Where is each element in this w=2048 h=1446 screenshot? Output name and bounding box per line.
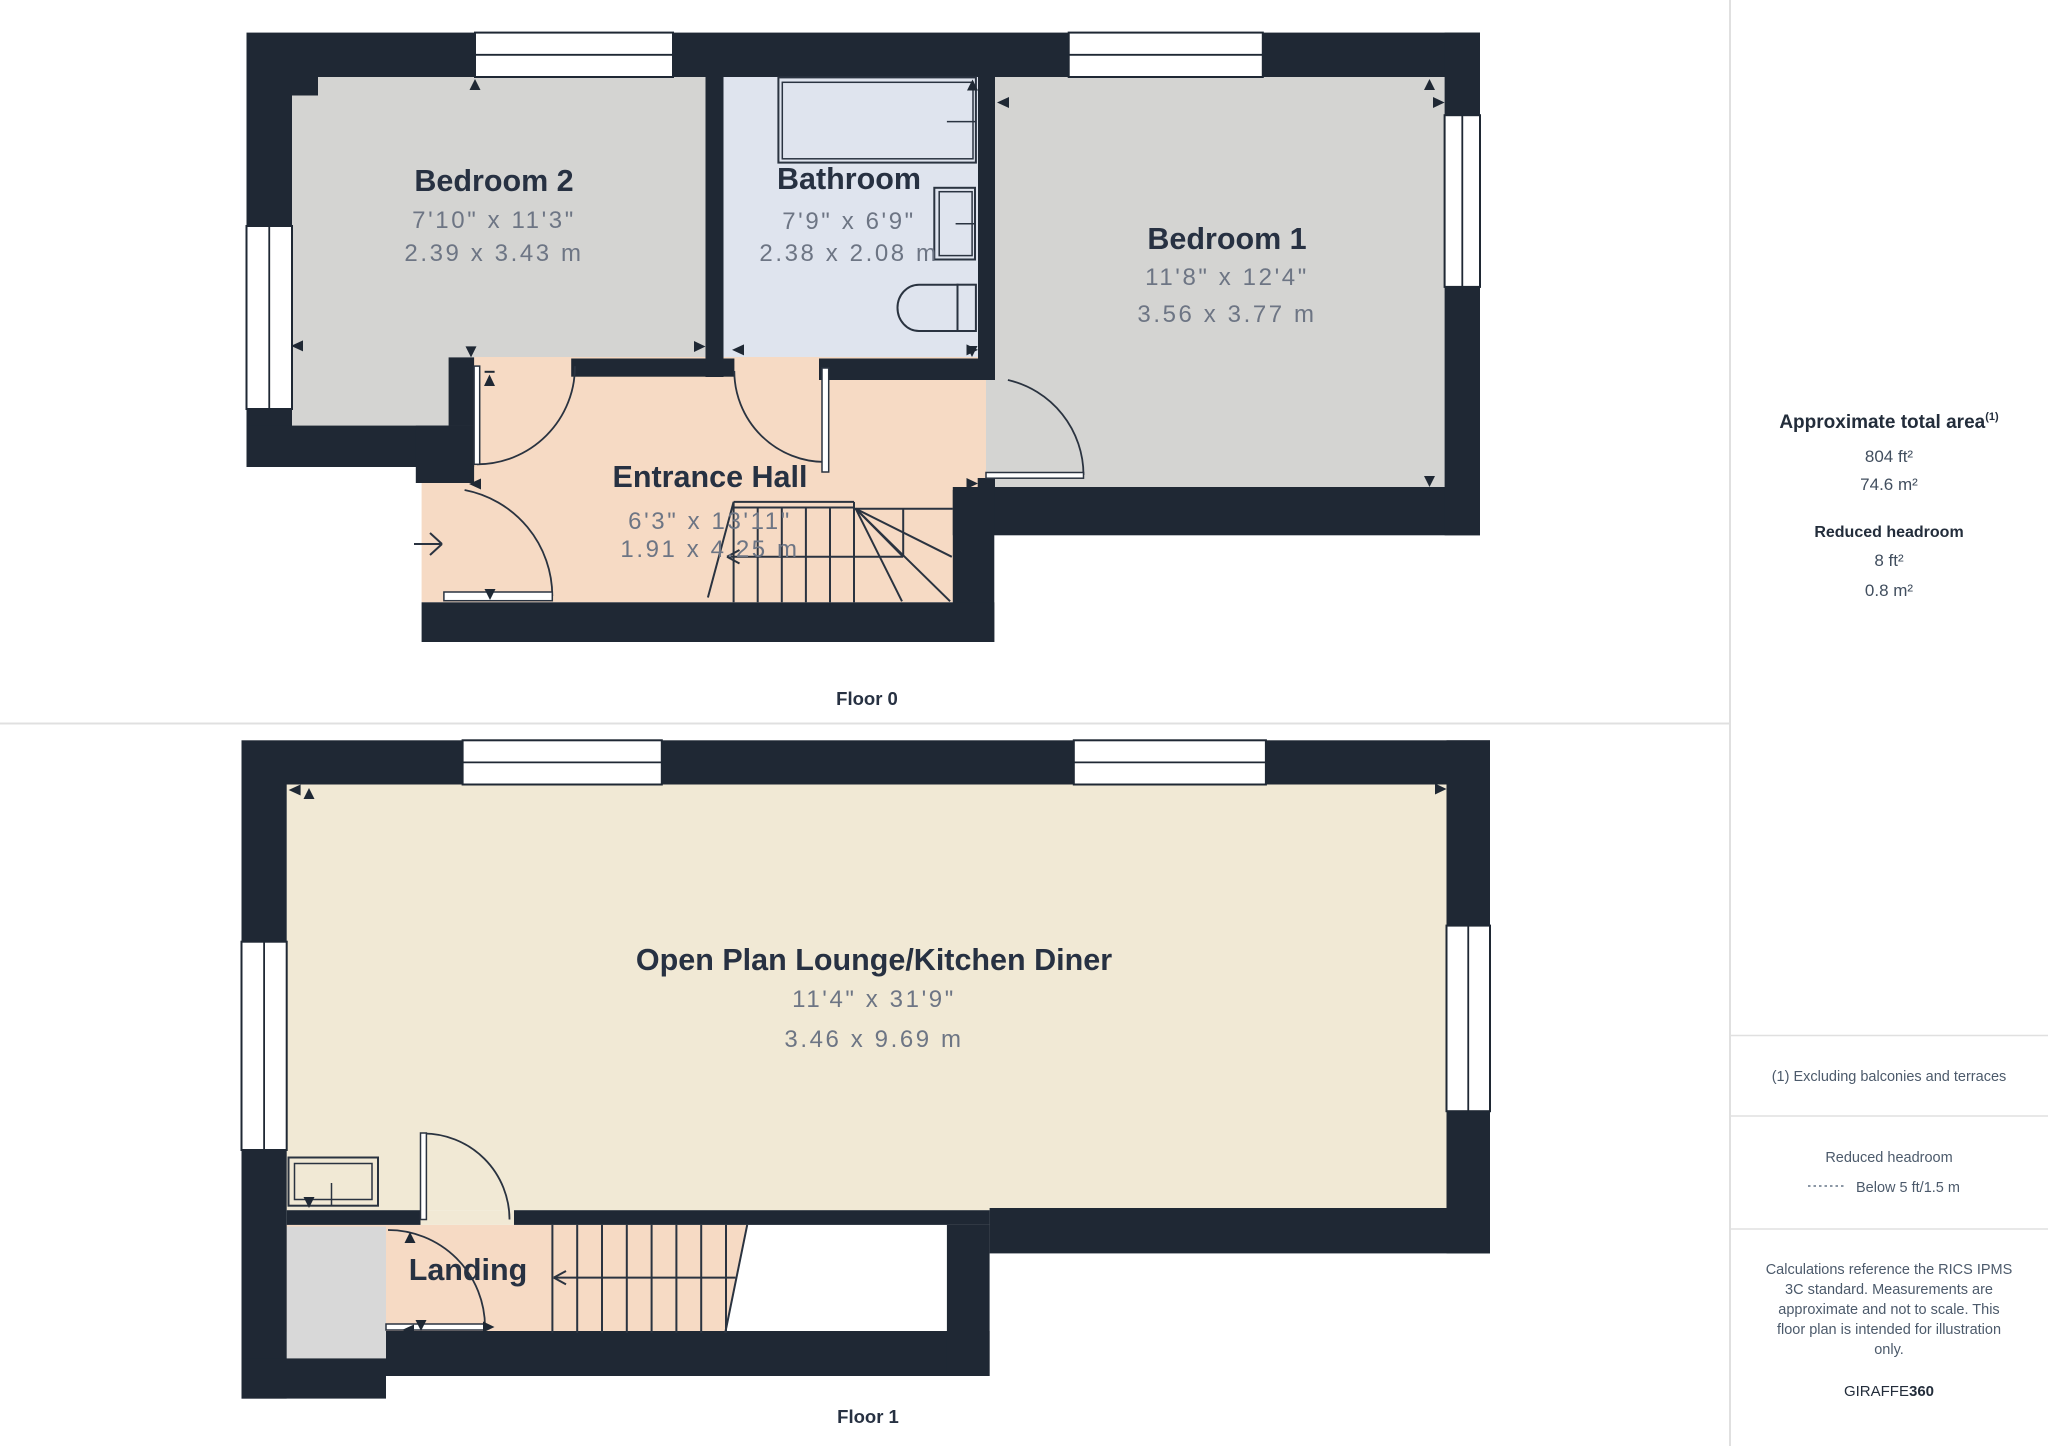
svg-text:7'10" x 11'3": 7'10" x 11'3" (412, 207, 576, 234)
svg-text:(1) Excluding balconies and te: (1) Excluding balconies and terraces (1772, 1069, 2007, 1085)
svg-text:8 ft²: 8 ft² (1874, 551, 1904, 570)
svg-text:Entrance Hall: Entrance Hall (613, 460, 808, 494)
svg-text:Bathroom: Bathroom (777, 162, 921, 196)
svg-text:3.56 x 3.77 m: 3.56 x 3.77 m (1137, 301, 1316, 328)
svg-text:11'8" x 12'4": 11'8" x 12'4" (1145, 264, 1309, 291)
svg-text:Approximate total area(1): Approximate total area(1) (1779, 411, 1999, 433)
svg-text:approximate and not to scale.: approximate and not to scale. This (1778, 1302, 1999, 1318)
svg-text:Below 5 ft/1.5 m: Below 5 ft/1.5 m (1856, 1180, 1960, 1196)
svg-text:11'4" x 31'9": 11'4" x 31'9" (792, 986, 956, 1013)
svg-text:Calculations reference the RIC: Calculations reference the RICS IPMS (1766, 1262, 2013, 1278)
svg-text:3.46 x 9.69 m: 3.46 x 9.69 m (784, 1026, 963, 1053)
svg-text:0.8 m²: 0.8 m² (1865, 581, 1914, 600)
svg-text:floor plan is intended for ill: floor plan is intended for illustration (1777, 1322, 2001, 1338)
svg-text:Landing: Landing (409, 1253, 528, 1287)
svg-text:only.: only. (1874, 1342, 1904, 1358)
svg-text:GIRAFFE360: GIRAFFE360 (1844, 1383, 1934, 1400)
svg-text:1.91 x 4.25 m: 1.91 x 4.25 m (620, 536, 799, 563)
svg-text:Floor 1: Floor 1 (837, 1406, 899, 1427)
svg-text:74.6 m²: 74.6 m² (1860, 475, 1918, 494)
svg-text:804 ft²: 804 ft² (1865, 447, 1914, 466)
svg-text:2.38 x 2.08 m: 2.38 x 2.08 m (759, 240, 938, 267)
svg-text:Bedroom 2: Bedroom 2 (414, 164, 573, 198)
svg-text:2.39 x 3.43 m: 2.39 x 3.43 m (404, 240, 583, 267)
svg-text:Floor 0: Floor 0 (836, 688, 898, 709)
svg-text:Reduced headroom: Reduced headroom (1814, 524, 1963, 541)
svg-text:Open Plan Lounge/Kitchen Diner: Open Plan Lounge/Kitchen Diner (636, 943, 1112, 977)
svg-text:3C standard. Measurements are: 3C standard. Measurements are (1785, 1282, 1993, 1298)
svg-text:6'3" x 13'11": 6'3" x 13'11" (628, 508, 792, 535)
svg-text:7'9" x 6'9": 7'9" x 6'9" (782, 208, 916, 235)
svg-text:Bedroom 1: Bedroom 1 (1147, 222, 1306, 256)
svg-text:Reduced headroom: Reduced headroom (1825, 1150, 1952, 1166)
